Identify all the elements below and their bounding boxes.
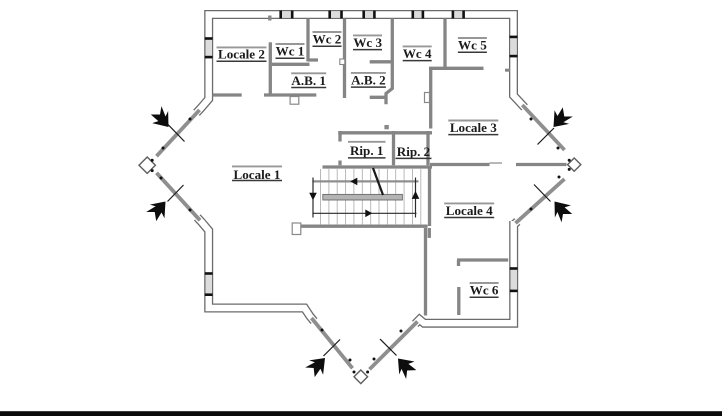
svg-text:Wc 6: Wc 6 (470, 283, 499, 298)
svg-text:Locale 2: Locale 2 (218, 47, 265, 62)
svg-text:Wc 4: Wc 4 (403, 46, 432, 61)
svg-text:Locale 3: Locale 3 (450, 120, 497, 135)
svg-text:Locale 1: Locale 1 (234, 167, 281, 182)
svg-text:Rip. 2: Rip. 2 (397, 144, 430, 159)
svg-text:Wc 3: Wc 3 (353, 35, 382, 50)
svg-text:Locale 4: Locale 4 (446, 203, 493, 218)
svg-text:Rip. 1: Rip. 1 (350, 143, 383, 158)
svg-text:Wc 1: Wc 1 (276, 44, 305, 59)
svg-text:A.B. 2: A.B. 2 (351, 73, 386, 88)
svg-text:A.B. 1: A.B. 1 (291, 73, 326, 88)
svg-text:Wc 2: Wc 2 (313, 32, 342, 47)
svg-text:Wc 5: Wc 5 (458, 38, 487, 53)
